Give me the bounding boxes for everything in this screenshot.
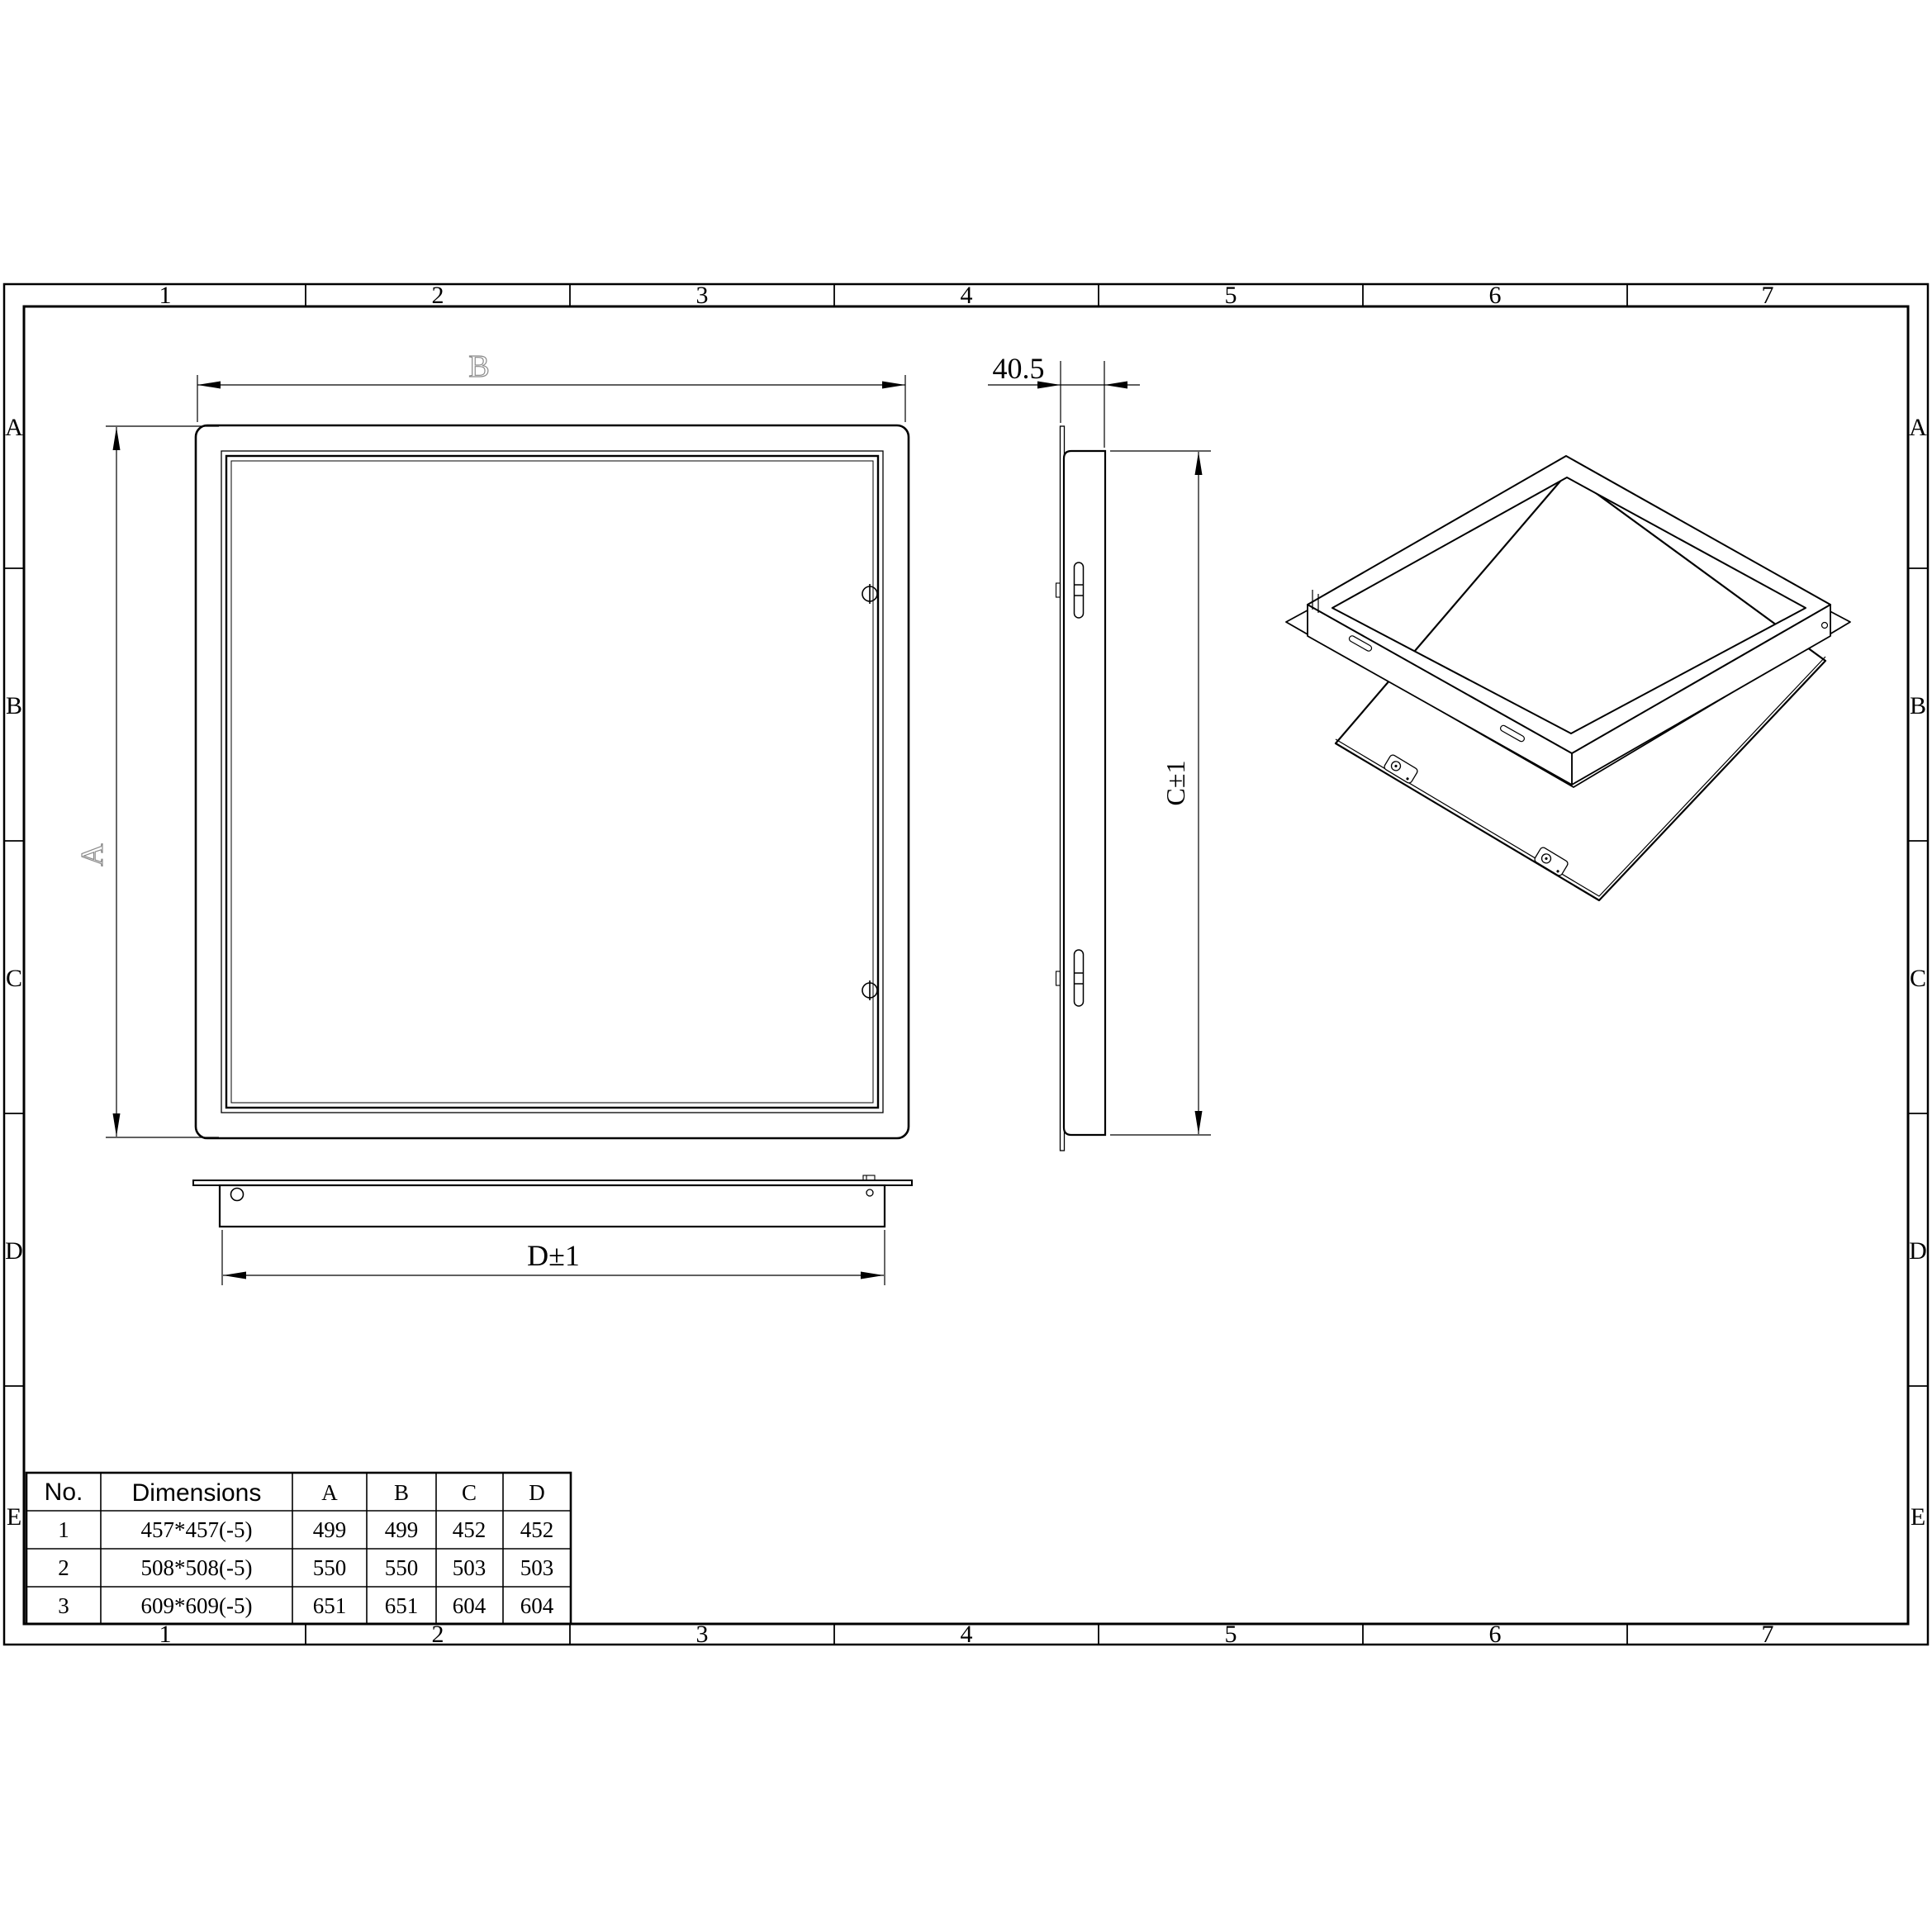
cell-a: 651 xyxy=(313,1593,347,1618)
cell-c: 503 xyxy=(453,1555,487,1580)
cell-a: 499 xyxy=(313,1517,347,1542)
grid-row-label-right: B xyxy=(1910,692,1926,719)
grid-row-label-left: E xyxy=(7,1503,21,1531)
drawing-border xyxy=(4,284,1928,1645)
grid-col-label-bottom: 3 xyxy=(696,1621,709,1648)
arrowhead xyxy=(113,427,121,450)
dim-label-depth: 40.5 xyxy=(993,352,1045,385)
front-view-frame-inner-edge xyxy=(221,451,883,1113)
grid-col-label-bottom: 4 xyxy=(961,1621,973,1648)
cell-b: 651 xyxy=(385,1593,419,1618)
arrowhead xyxy=(197,382,221,389)
cell-b: 499 xyxy=(385,1517,419,1542)
grid-labels: 1 2 3 4 5 6 7 1 2 3 4 5 6 7 A B C D E A … xyxy=(5,282,1927,1648)
side-view-latch-tab-bottom xyxy=(1056,971,1061,985)
grid-col-label-bottom: 7 xyxy=(1762,1621,1774,1648)
grid-row-label-left: A xyxy=(5,414,23,441)
cell-c: 452 xyxy=(453,1517,487,1542)
dimension-c: C±1 xyxy=(1110,451,1211,1135)
technical-drawing: 1 2 3 4 5 6 7 1 2 3 4 5 6 7 A B C D E A … xyxy=(0,0,1932,1932)
size-table: No. Dimensions A B C D 1 457*457(-5) 499… xyxy=(26,1473,571,1624)
side-view-frame-body xyxy=(1064,451,1105,1135)
cell-dimensions: 508*508(-5) xyxy=(141,1555,253,1580)
cell-d: 503 xyxy=(520,1555,554,1580)
table-header-a: A xyxy=(321,1480,338,1505)
cell-c: 604 xyxy=(453,1593,487,1618)
dimension-d: D±1 xyxy=(222,1230,885,1285)
table-row: 2 508*508(-5) 550 550 503 503 xyxy=(58,1555,553,1580)
front-view-door-panel xyxy=(226,456,878,1108)
bottom-view-frame-body xyxy=(220,1185,885,1227)
cell-b: 550 xyxy=(385,1555,419,1580)
table-header-c: C xyxy=(462,1480,477,1505)
front-view-screw-bottom xyxy=(862,980,877,1000)
outer-border xyxy=(4,284,1928,1645)
dimension-a: A xyxy=(75,426,219,1137)
cell-no: 3 xyxy=(58,1593,69,1618)
table-row: 1 457*457(-5) 499 499 452 452 xyxy=(58,1517,553,1542)
front-view-screw-top xyxy=(862,584,877,604)
grid-row-label-left: C xyxy=(6,965,22,992)
arrowhead xyxy=(223,1272,246,1279)
grid-col-label-top: 6 xyxy=(1489,282,1502,309)
grid-col-label-top: 5 xyxy=(1225,282,1237,309)
bottom-view xyxy=(193,1175,912,1227)
drawing-sheet: 1 2 3 4 5 6 7 1 2 3 4 5 6 7 A B C D E A … xyxy=(0,0,1932,1932)
arrowhead xyxy=(1104,382,1127,389)
table-row: 3 609*609(-5) 651 651 604 604 xyxy=(58,1593,554,1618)
arrowhead xyxy=(861,1272,884,1279)
table-header-no: No. xyxy=(45,1479,83,1506)
cell-d: 604 xyxy=(520,1593,554,1618)
front-view xyxy=(196,425,909,1138)
arrowhead xyxy=(1195,1111,1203,1134)
grid-col-label-top: 1 xyxy=(159,282,172,309)
grid-row-label-left: B xyxy=(6,692,22,719)
dim-label-c: C±1 xyxy=(1161,761,1190,806)
arrowhead xyxy=(113,1113,121,1137)
table-header-d: D xyxy=(529,1480,545,1505)
front-view-door-inner-edge xyxy=(231,461,873,1103)
isometric-view xyxy=(1286,456,1850,900)
dim-label-b: B xyxy=(468,349,489,384)
cell-dimensions: 609*609(-5) xyxy=(141,1593,253,1618)
side-view xyxy=(1056,426,1106,1151)
dim-label-d: D±1 xyxy=(527,1239,580,1272)
cell-d: 452 xyxy=(520,1517,554,1542)
grid-row-label-right: D xyxy=(1909,1237,1927,1265)
side-view-latch-tab-top xyxy=(1056,583,1061,597)
dimension-b: B xyxy=(197,349,905,422)
grid-row-label-left: D xyxy=(5,1237,23,1265)
front-view-outer-frame xyxy=(196,425,909,1138)
arrowhead xyxy=(1195,452,1203,475)
grid-col-label-top: 7 xyxy=(1762,282,1774,309)
grid-col-label-top: 4 xyxy=(961,282,973,309)
grid-col-label-bottom: 5 xyxy=(1225,1621,1237,1648)
grid-row-label-right: A xyxy=(1909,414,1927,441)
cell-no: 2 xyxy=(58,1555,69,1580)
grid-col-label-top: 3 xyxy=(696,282,709,309)
table-header-dimensions: Dimensions xyxy=(132,1479,262,1507)
cell-a: 550 xyxy=(313,1555,347,1580)
arrowhead xyxy=(882,382,905,389)
dim-label-a: A xyxy=(75,843,110,866)
cell-no: 1 xyxy=(58,1517,69,1542)
grid-col-label-bottom: 6 xyxy=(1489,1621,1502,1648)
table-header-b: B xyxy=(394,1480,409,1505)
grid-row-label-right: E xyxy=(1911,1503,1925,1531)
cell-dimensions: 457*457(-5) xyxy=(141,1517,253,1542)
grid-row-label-right: C xyxy=(1910,965,1926,992)
grid-col-label-top: 2 xyxy=(432,282,444,309)
